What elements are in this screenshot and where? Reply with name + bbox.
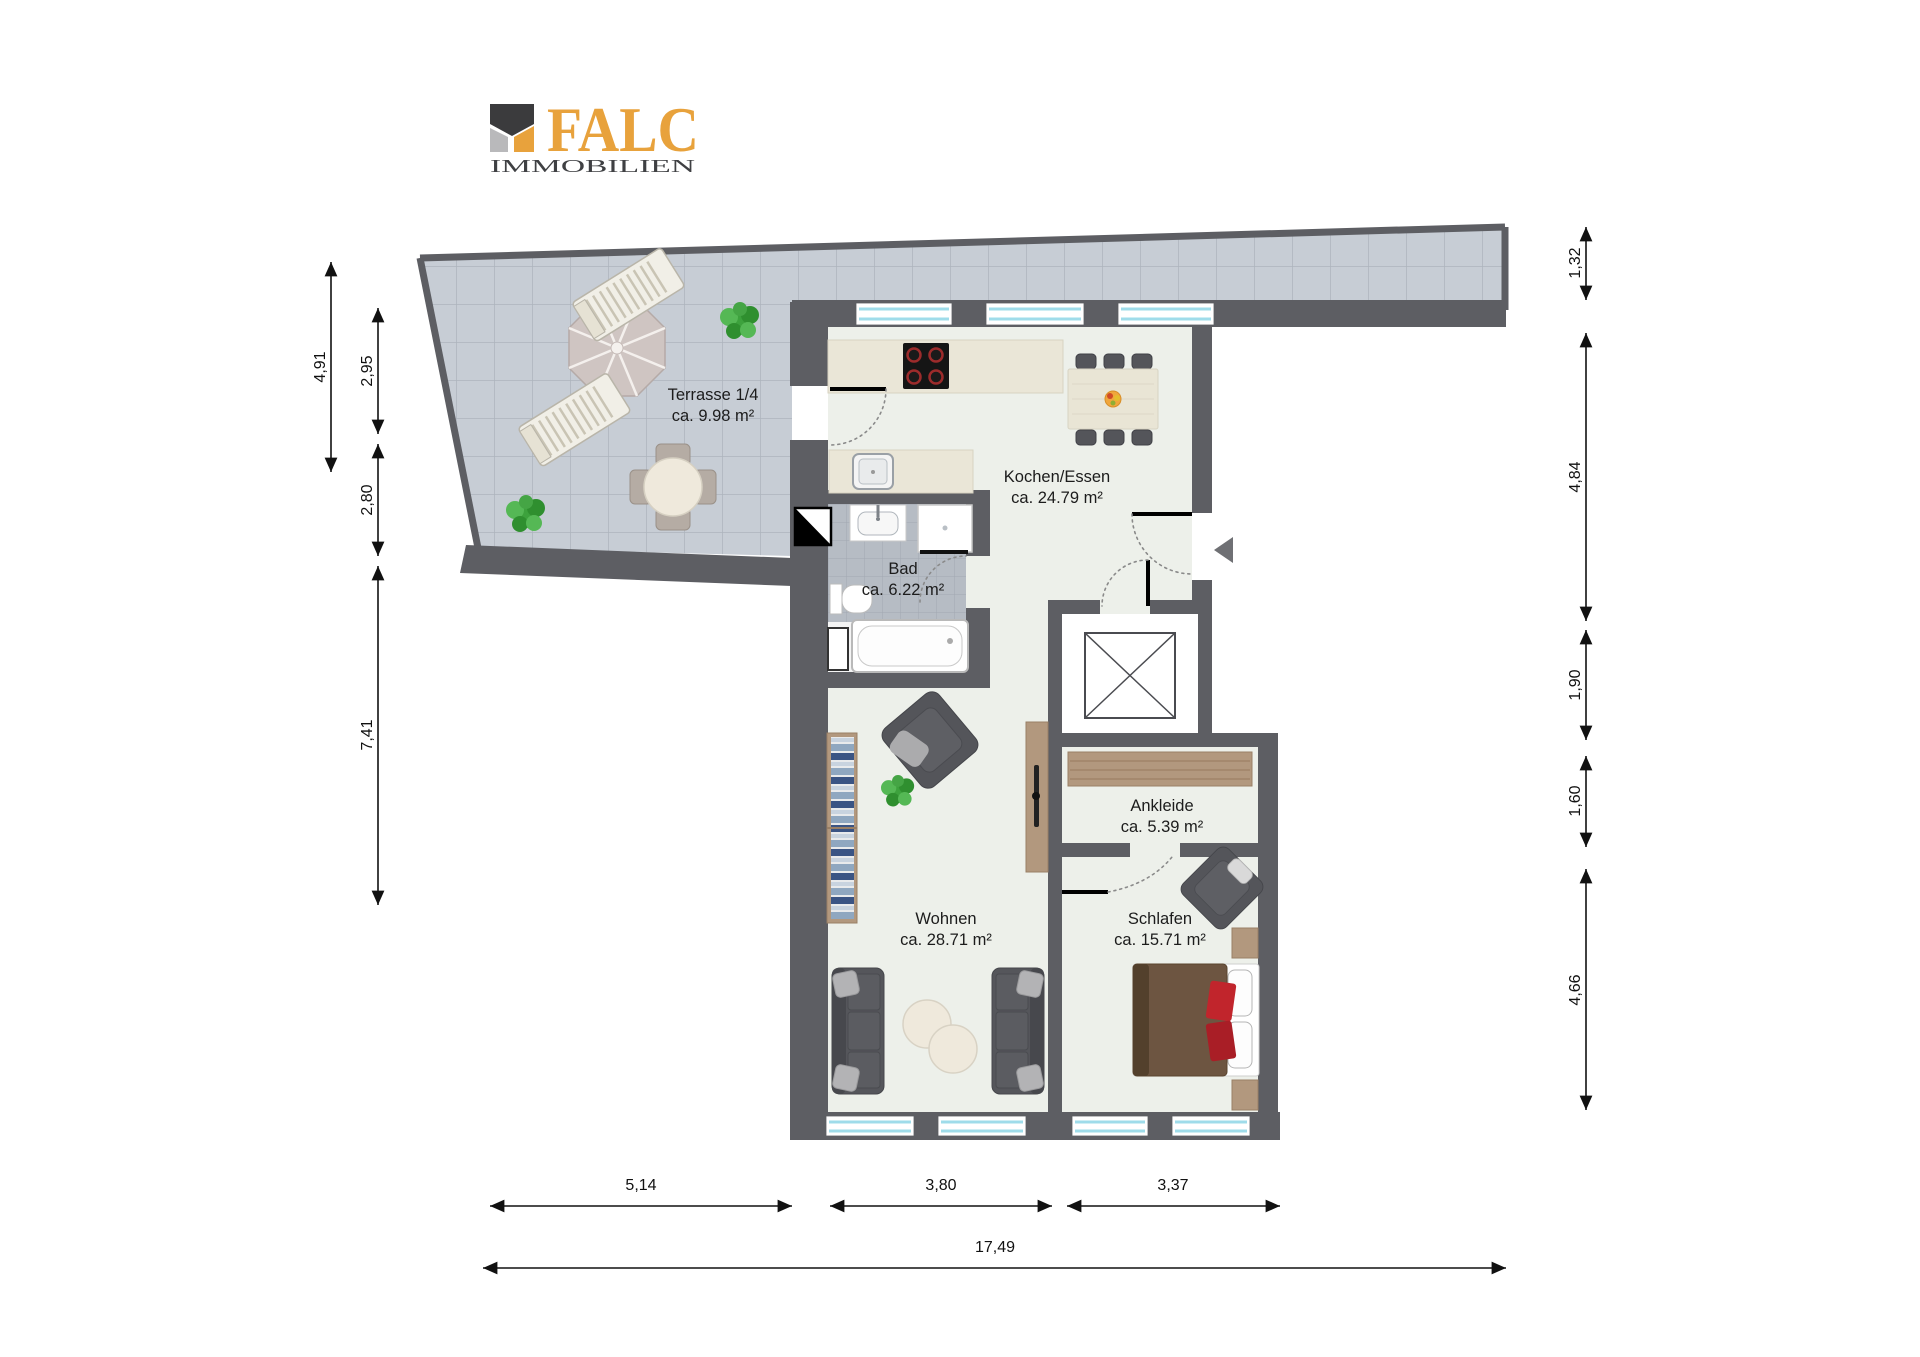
logo-subtitle-text: IMMOBILIEN <box>490 156 696 176</box>
left-wall-upper <box>790 302 828 386</box>
window <box>1172 1116 1250 1136</box>
dim-value: 1,90 <box>1567 669 1584 700</box>
bathtub-icon <box>828 620 968 672</box>
dressing-area-label: ca. 5.39 m² <box>1121 818 1204 836</box>
dimension-left-outer: 4,91 <box>312 262 331 472</box>
bath-cabinet-icon <box>828 628 848 670</box>
dim-value: 3,37 <box>1157 1177 1188 1194</box>
dressing-top-wall <box>1048 733 1278 747</box>
right-outer-wall-lower <box>1258 747 1278 1112</box>
shaft-top-wall-right <box>1150 600 1212 614</box>
kitchen-sink-icon <box>853 454 893 489</box>
nightstand-icon <box>1232 928 1258 958</box>
dim-value: 7,41 <box>359 719 376 750</box>
terrace-name-label: Terrasse 1/4 <box>668 386 759 404</box>
window <box>1118 303 1214 325</box>
shaft <box>1085 633 1175 718</box>
dim-value: 4,91 <box>312 351 329 382</box>
dining-table-set <box>1068 354 1158 445</box>
dim-value: 2,80 <box>359 484 376 515</box>
bath-area-label: ca. 6.22 m² <box>862 581 945 599</box>
washbasin-icon <box>850 505 906 541</box>
dimension-bottom: 5,14 3,80 3,37 17,49 <box>483 1177 1506 1268</box>
terrace-area-label: ca. 9.98 m² <box>672 407 755 425</box>
kitchen-name-label: Kochen/Essen <box>1004 468 1110 486</box>
floorplan-page: FALC IMMOBILIEN <box>0 0 1920 1357</box>
bookshelf-icon <box>827 733 857 923</box>
window <box>938 1116 1026 1136</box>
sofa-icon <box>832 968 884 1094</box>
dressing-name-label: Ankleide <box>1130 797 1193 815</box>
cooktop-icon <box>903 343 949 389</box>
right-wall-upper <box>1192 327 1212 513</box>
dimension-left-inner: 2,95 2,80 7,41 <box>359 308 378 905</box>
shaft-right-wall <box>1198 614 1212 733</box>
red-blanket <box>1205 980 1236 1021</box>
dimension-right: 1,32 4,84 1,90 1,60 4,66 <box>1567 227 1586 1110</box>
logo-brand-text: FALC <box>547 94 699 165</box>
shower-icon <box>918 505 972 552</box>
dim-value: 17,49 <box>975 1239 1015 1256</box>
living-area-label: ca. 28.71 m² <box>900 931 992 949</box>
dim-value: 3,80 <box>925 1177 956 1194</box>
sideboard-icon <box>1026 722 1048 872</box>
dim-value: 5,14 <box>625 1177 656 1194</box>
bedroom-top-wall-left <box>1062 843 1130 857</box>
floorplan-canvas: FALC IMMOBILIEN <box>0 0 1920 1357</box>
chimney-marker-icon <box>795 508 831 545</box>
window <box>1072 1116 1148 1136</box>
double-bed-icon <box>1133 964 1259 1076</box>
interior-left-wall <box>1048 600 1062 1112</box>
dim-value: 4,66 <box>1567 974 1584 1005</box>
bedroom-name-label: Schlafen <box>1128 910 1192 928</box>
bedroom-area-label: ca. 15.71 m² <box>1114 931 1206 949</box>
living-name-label: Wohnen <box>915 910 976 928</box>
bath-bottom-wall <box>828 672 990 688</box>
falc-logo-icon <box>490 104 534 152</box>
window <box>856 303 952 325</box>
kitchen-island <box>829 450 973 493</box>
window <box>986 303 1084 325</box>
red-blanket <box>1205 1020 1236 1061</box>
dim-value: 1,60 <box>1567 785 1584 816</box>
fruit-bowl-icon <box>1105 391 1121 407</box>
window <box>826 1116 914 1136</box>
entrance-arrow-icon <box>1214 537 1233 563</box>
kitchen-area-label: ca. 24.79 m² <box>1011 489 1103 507</box>
dim-value: 1,32 <box>1567 247 1584 278</box>
falc-logo: FALC IMMOBILIEN <box>490 94 699 176</box>
bath-right-wall-lower <box>966 608 990 672</box>
nightstand-icon <box>1232 1080 1258 1110</box>
wardrobe-icon <box>1068 752 1252 786</box>
bath-name-label: Bad <box>888 560 917 578</box>
dim-value: 4,84 <box>1567 461 1584 492</box>
sofa-icon <box>992 968 1044 1094</box>
dim-value: 2,95 <box>359 355 376 386</box>
